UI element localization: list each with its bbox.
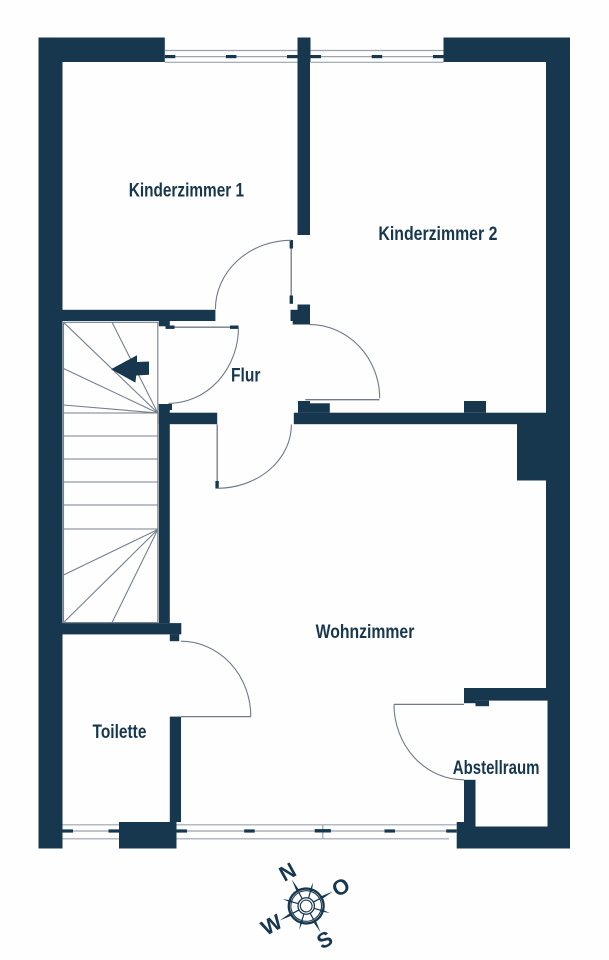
svg-text:Abstellraum: Abstellraum [453, 758, 540, 779]
svg-text:Toilette: Toilette [93, 722, 147, 743]
svg-text:Flur: Flur [231, 365, 261, 386]
svg-text:Kinderzimmer 2: Kinderzimmer 2 [378, 224, 497, 245]
svg-text:Kinderzimmer 1: Kinderzimmer 1 [129, 181, 245, 202]
svg-text:Wohnzimmer: Wohnzimmer [316, 622, 415, 643]
